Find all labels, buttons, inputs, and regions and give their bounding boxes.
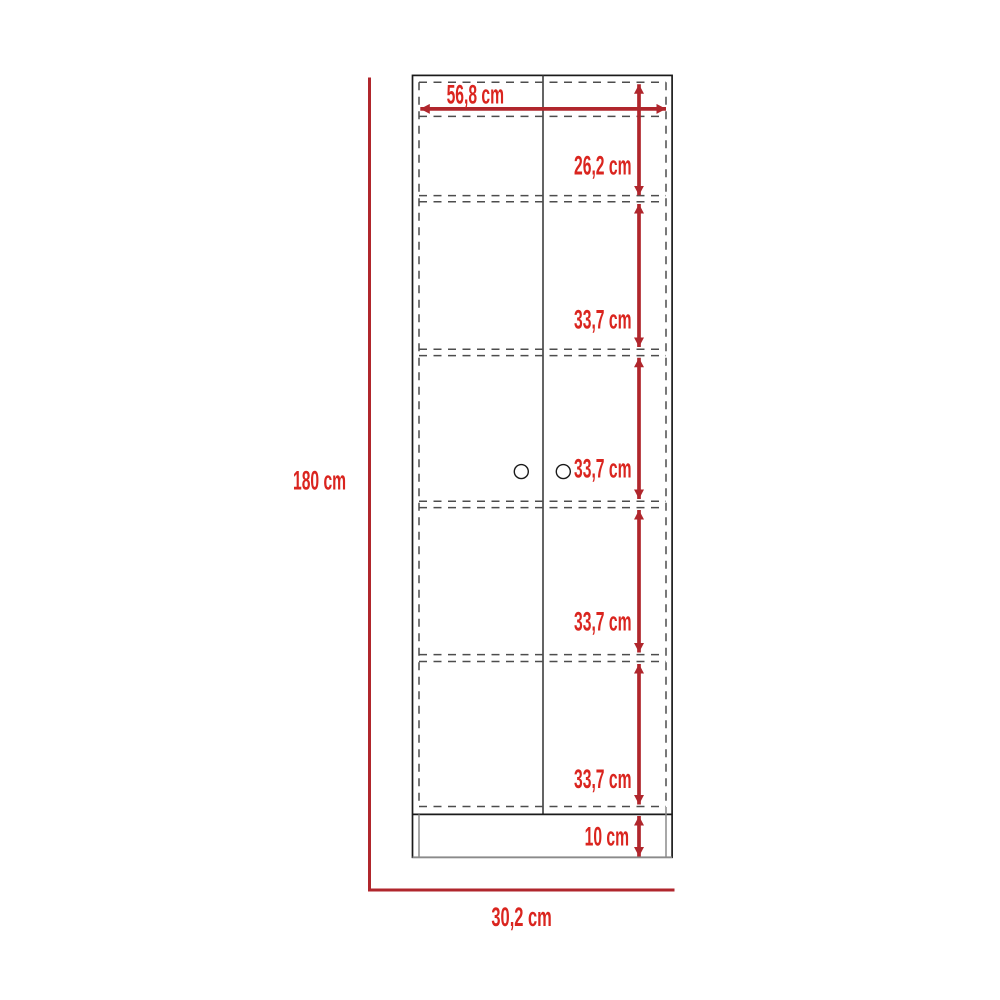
svg-text:33,7 cm: 33,7 cm — [574, 453, 631, 484]
svg-text:30,2 cm: 30,2 cm — [491, 902, 551, 932]
svg-text:10 cm: 10 cm — [585, 821, 629, 852]
svg-text:26,2 cm: 26,2 cm — [574, 150, 631, 181]
svg-text:56,8 cm: 56,8 cm — [447, 79, 504, 110]
svg-text:33,7 cm: 33,7 cm — [574, 764, 631, 795]
svg-text:33,7 cm: 33,7 cm — [574, 606, 631, 637]
svg-text:33,7 cm: 33,7 cm — [574, 304, 631, 335]
svg-text:180 cm: 180 cm — [293, 465, 346, 496]
